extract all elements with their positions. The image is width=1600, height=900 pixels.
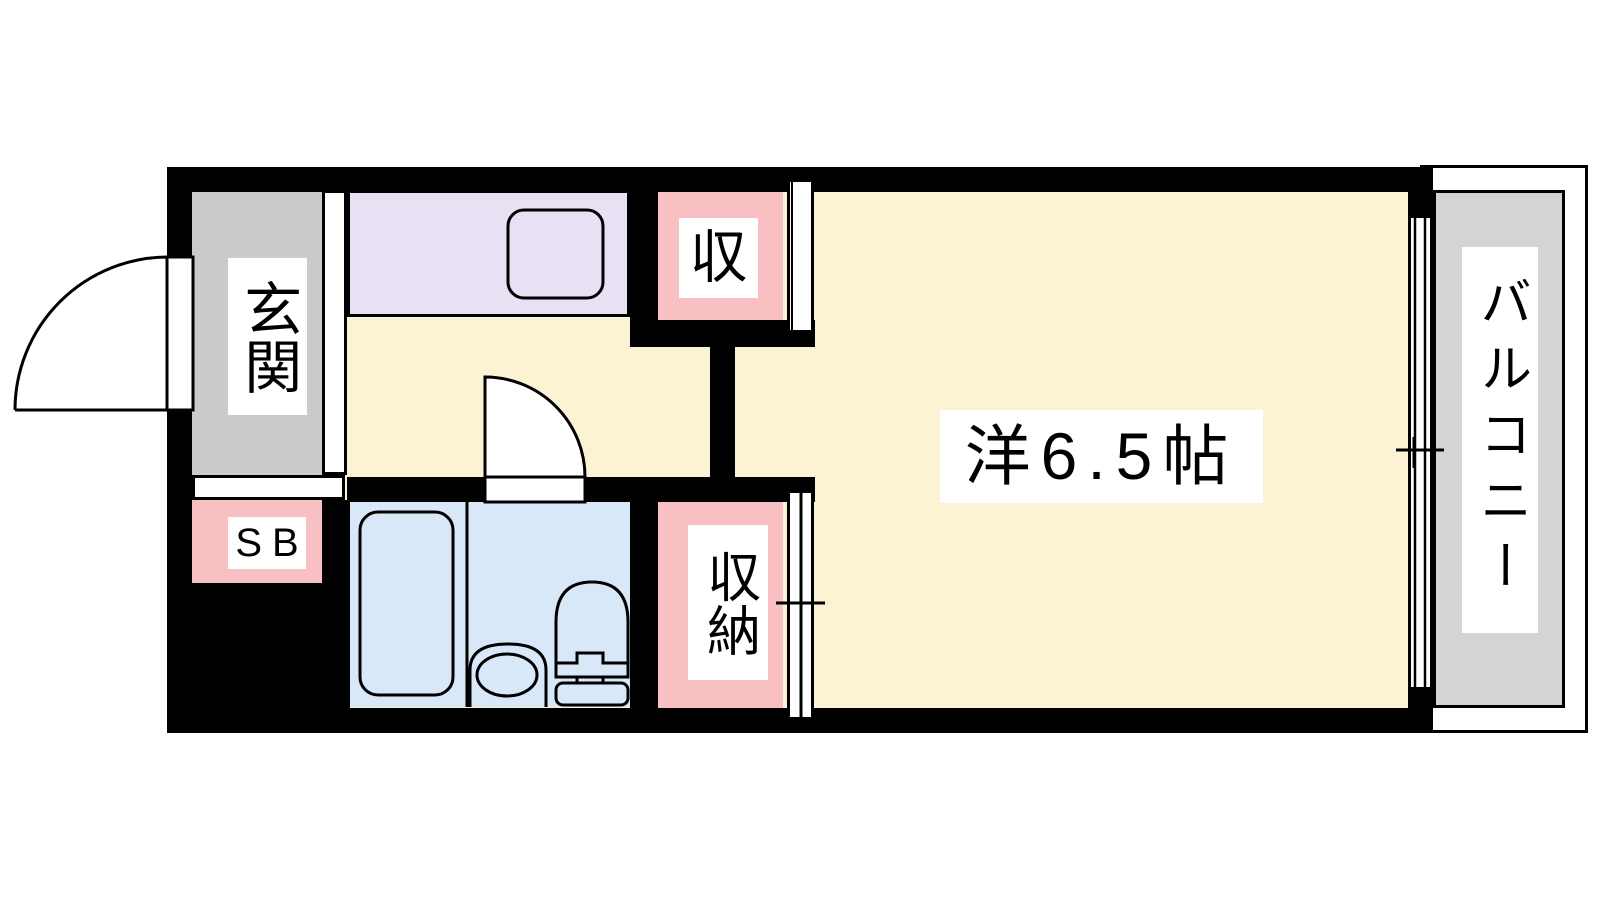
wall-middle: [347, 477, 815, 502]
bathroom-area: [347, 502, 630, 707]
main-room-label: 洋6.5帖: [940, 410, 1263, 503]
wall-kitchen-closet: [630, 190, 658, 322]
wall-bath-storage: [630, 502, 658, 708]
entrance-label: 玄関: [228, 258, 307, 415]
wall-corner-block: [167, 583, 350, 733]
closet-upper-door: [787, 179, 814, 333]
balcony-label: バルコニー: [1462, 247, 1538, 633]
kitchen-area: [347, 190, 630, 317]
wall-hall-room-divider: [710, 345, 735, 479]
wall-right-upper: [1408, 167, 1433, 218]
wall-shoebox-side: [322, 500, 350, 583]
closet-upper-label: 収: [679, 218, 758, 298]
entrance-step-bottom: [192, 475, 345, 500]
shoe-box-label: SB: [228, 517, 306, 569]
entrance-step-right: [322, 190, 347, 475]
closet-lower-sliding-door: [787, 490, 814, 720]
floor-plan: 玄関 SB 収 収納 洋6.5帖 バルコニー: [0, 0, 1600, 900]
closet-lower-label: 収納: [688, 525, 768, 680]
wall-right-lower: [1408, 687, 1433, 733]
balcony-window: [1408, 218, 1433, 687]
